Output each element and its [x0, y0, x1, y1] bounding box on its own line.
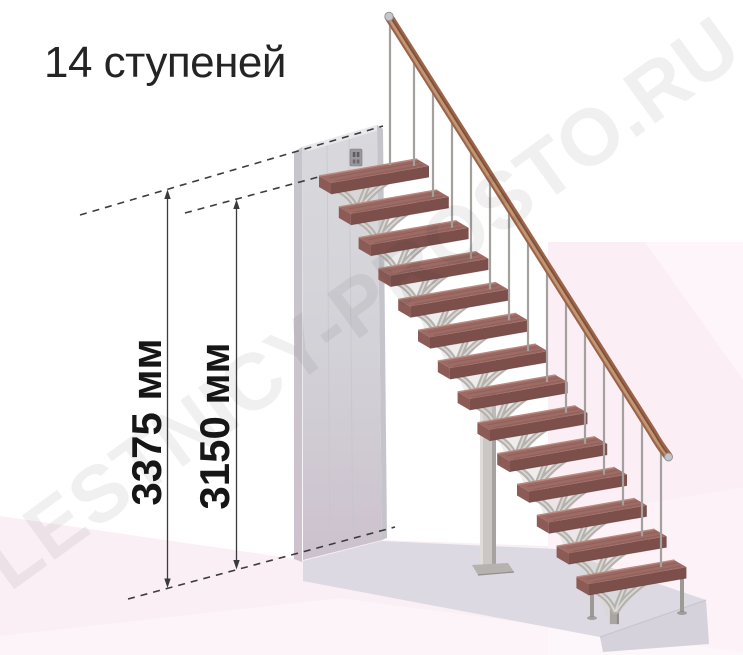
- staircase-diagram: LESTNICY-PROSTO.RU 14 ступеней 3375 мм 3…: [0, 0, 743, 655]
- wall-mount-bracket: [350, 149, 362, 166]
- handrail-end-cap: [665, 453, 673, 461]
- dimension-3375-label: 3375 мм: [121, 272, 173, 572]
- handrail-top-cap: [385, 12, 393, 20]
- dimension-3150-label: 3150 мм: [189, 276, 241, 576]
- page-title: 14 ступеней: [44, 38, 286, 88]
